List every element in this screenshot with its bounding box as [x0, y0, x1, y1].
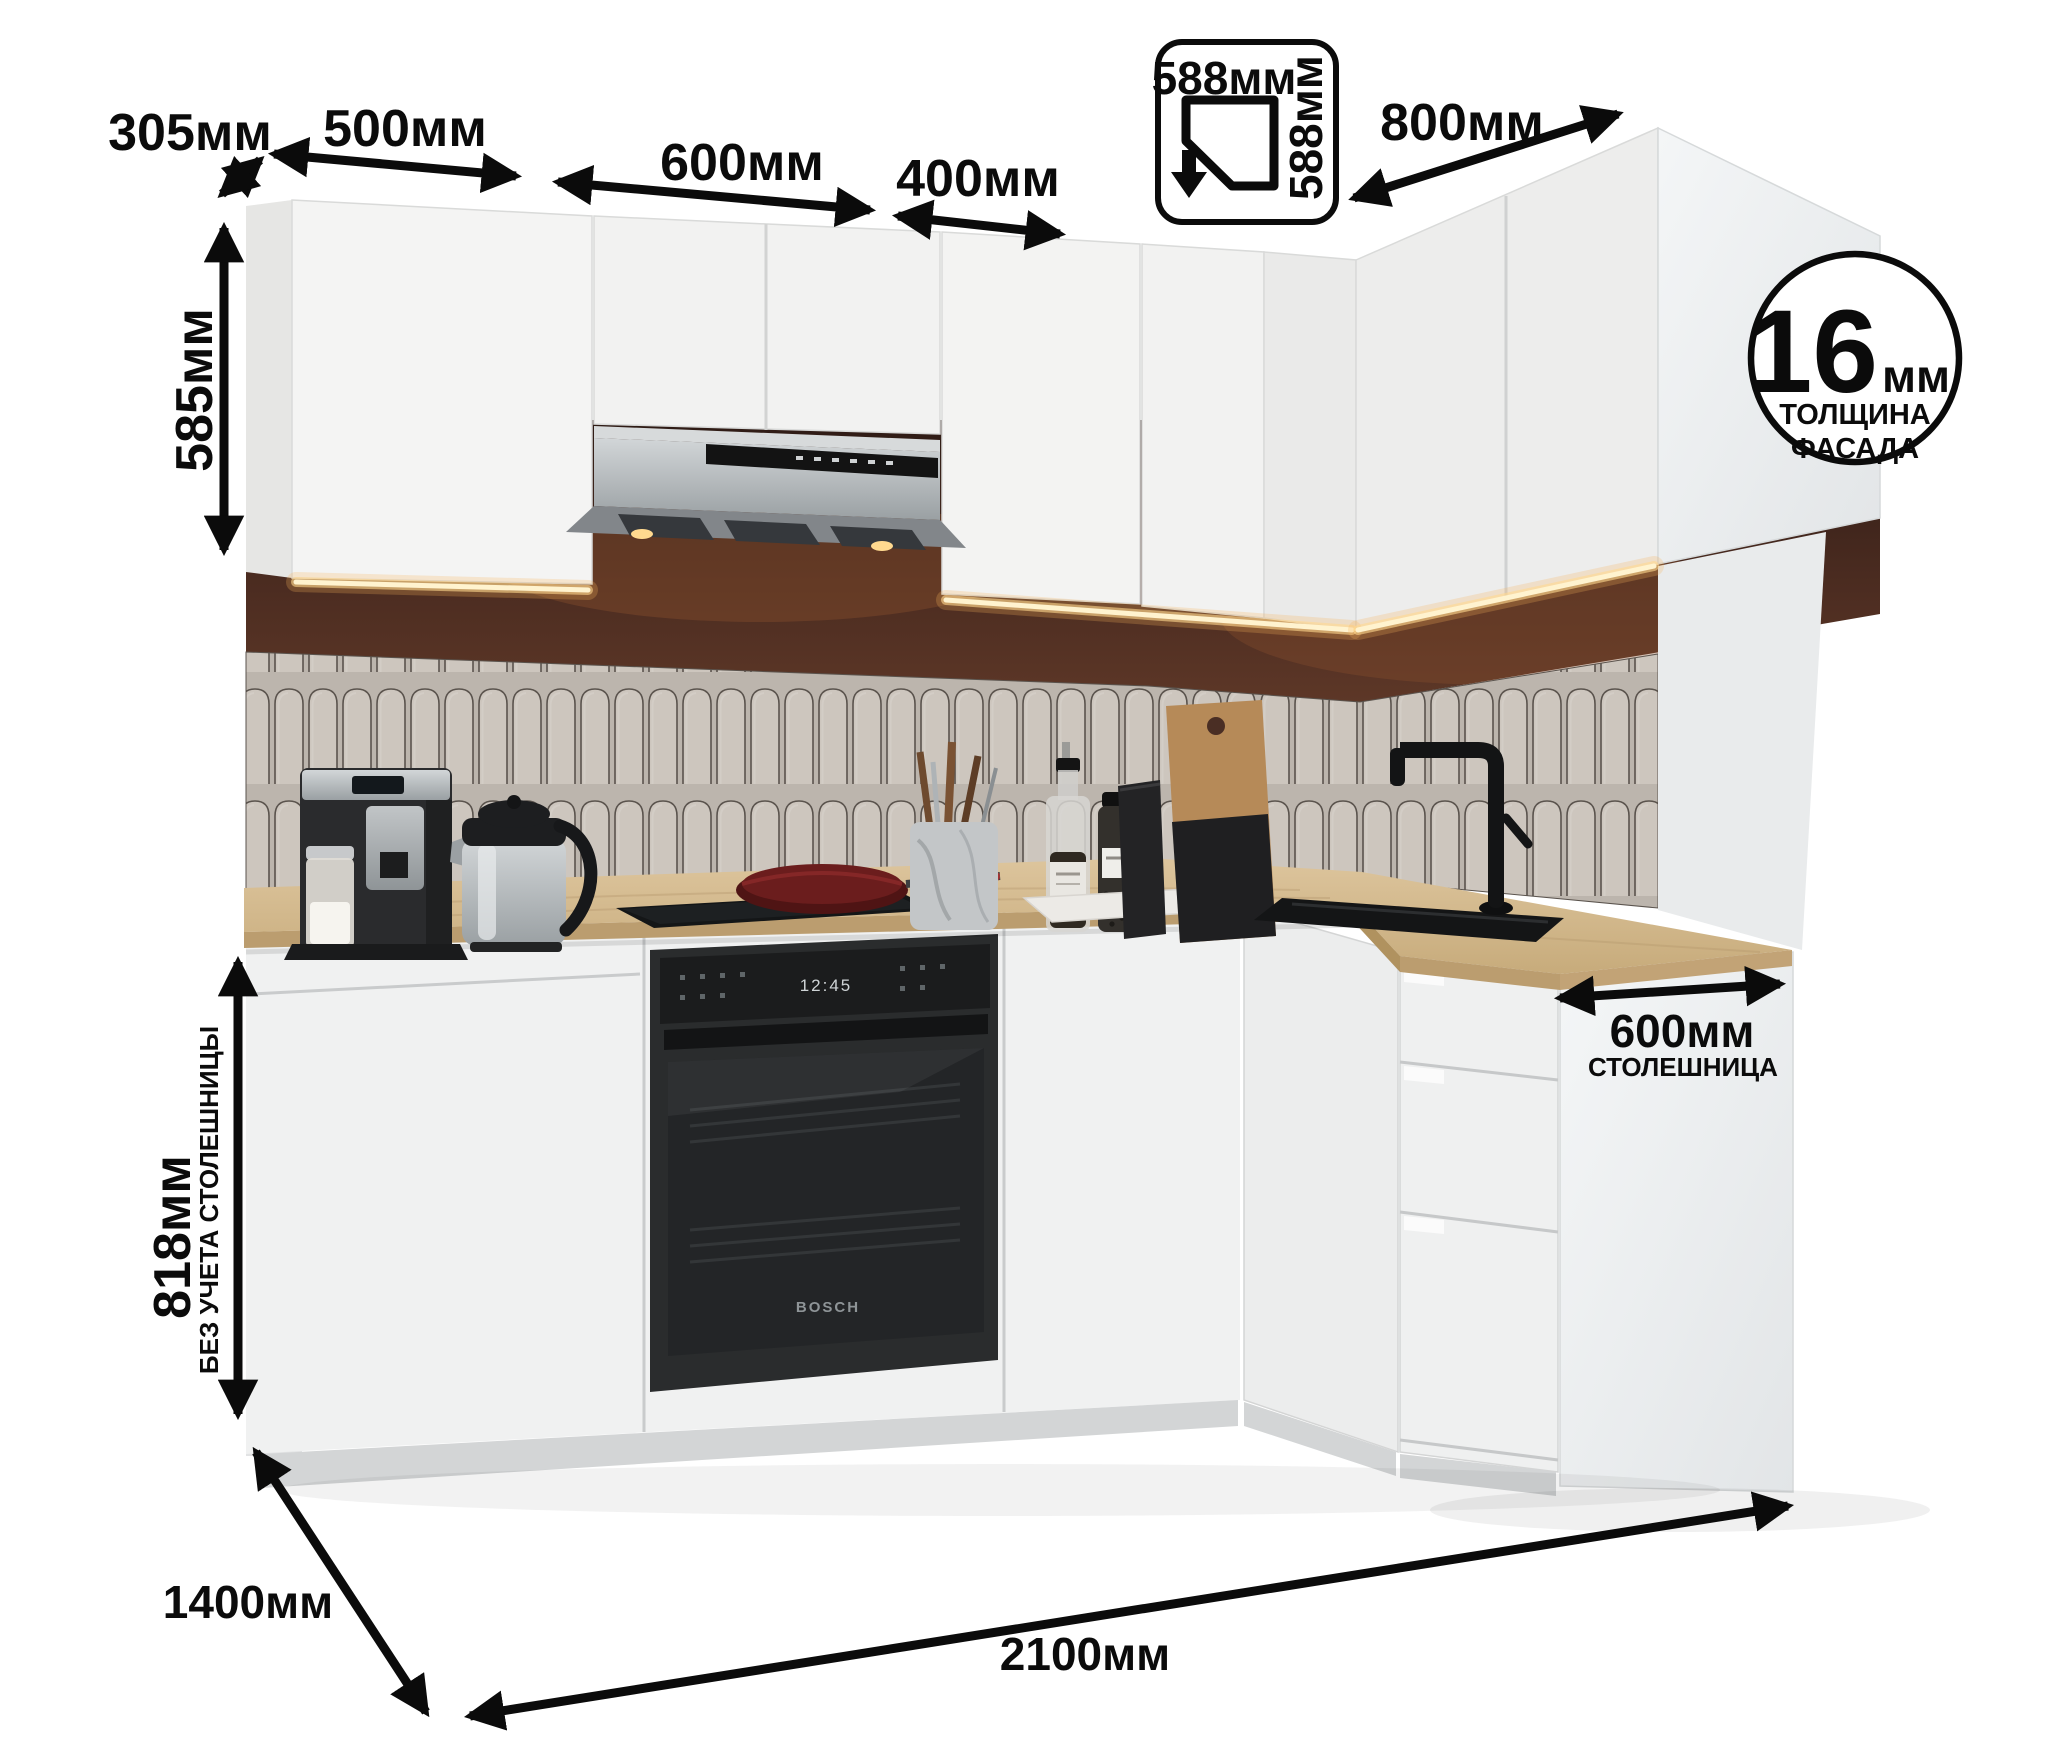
corner-base-angled-door — [1244, 908, 1398, 1452]
badge-line2: ФАСАДА — [1791, 433, 1919, 465]
wooden-cutting-board — [1166, 700, 1276, 943]
kitchen-dimensions-figure: 12:45 BOSCH — [0, 0, 2048, 1757]
label-countertop: СТОЛЕШНИЦА — [1588, 1052, 1778, 1082]
oven-display: 12:45 — [800, 976, 853, 995]
label-588-depth: 588мм — [1280, 55, 1332, 200]
wall-cabinet-500 — [292, 200, 592, 584]
label-585: 585мм — [166, 308, 224, 472]
dark-board — [1118, 780, 1166, 939]
corner-cabinet-plan-icon: 588мм 588мм — [1152, 42, 1336, 222]
oven: 12:45 BOSCH — [650, 934, 998, 1392]
coffee-machine — [284, 768, 468, 960]
label-305: 305мм — [108, 104, 272, 162]
label-600-countertop: 600мм — [1610, 1005, 1755, 1057]
kitchen-scene: 12:45 BOSCH — [0, 0, 2048, 1757]
badge-unit: мм — [1882, 350, 1950, 402]
hood-light-left — [631, 529, 653, 539]
label-800: 800мм — [1380, 94, 1544, 152]
base-drawer-unit — [1400, 952, 1558, 1472]
label-400: 400мм — [896, 150, 1060, 208]
label-2100: 2100мм — [1000, 1628, 1170, 1680]
hood-light-right — [871, 541, 893, 551]
wall-cabinet-400 — [942, 232, 1140, 604]
oven-brand-label: BOSCH — [796, 1299, 860, 1316]
wall-cabinet-500-side — [246, 200, 292, 578]
label-818-note: БЕЗ УЧЕТА СТОЛЕШНИЦЫ — [194, 1026, 224, 1374]
corner-wall-cabinet-front — [1142, 244, 1264, 618]
label-1400: 1400мм — [163, 1576, 333, 1628]
label-500: 500мм — [323, 100, 487, 158]
corner-wall-cabinet-angled-door — [1264, 252, 1356, 630]
label-600: 600мм — [660, 134, 824, 192]
badge-line1: ТОЛЩИНА — [1779, 399, 1931, 431]
right-wall — [1658, 532, 1826, 950]
